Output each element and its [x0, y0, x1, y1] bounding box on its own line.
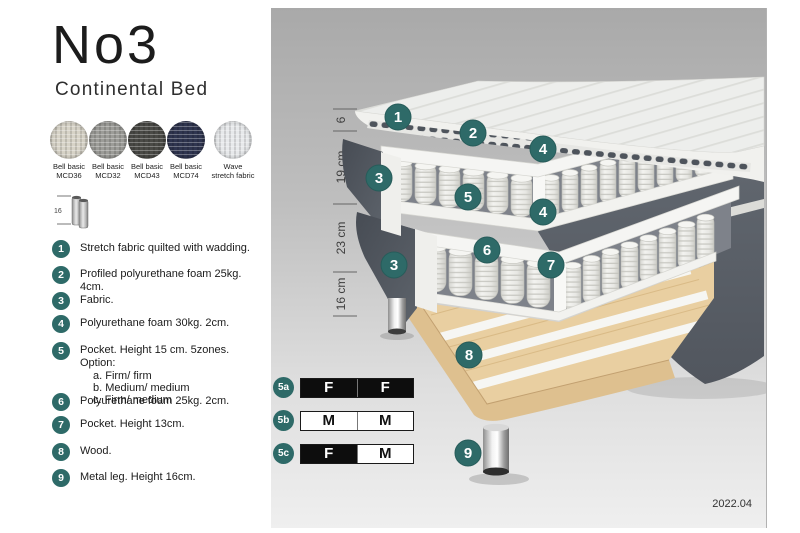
item-number-badge: 7 [52, 416, 70, 434]
spec-item-7: 7 Pocket. Height 13cm. [52, 416, 267, 434]
callout-9: 9 [455, 440, 481, 466]
callout-8: 8 [456, 342, 482, 368]
callout-6: 6 [474, 237, 500, 263]
spec-item-4: 4 Polyurethane foam 30kg. 2cm. [52, 315, 267, 333]
lower-cage-end-wall [415, 229, 437, 313]
callout-3a: 3 [366, 165, 392, 191]
item-number-badge: 5 [52, 342, 70, 360]
dimension-label: 16 cm [334, 278, 348, 311]
callout-3b: 3 [381, 252, 407, 278]
info-panel: No3 Continental Bed Bell basicMCD36 Bell… [0, 0, 271, 533]
version-label: 2022.04 [712, 498, 752, 510]
svg-text:3: 3 [390, 257, 398, 274]
front-metal-leg [483, 427, 509, 473]
svg-text:4: 4 [539, 141, 548, 158]
callout-4b: 4 [530, 199, 556, 225]
item-number-badge: 9 [52, 469, 70, 487]
left-metal-leg [388, 298, 406, 332]
spec-item-2: 2 Profiled polyurethane foam 25kg. 4cm. [52, 266, 267, 294]
spec-item-1: 1 Stretch fabric quilted with wadding. [52, 240, 267, 258]
svg-text:1: 1 [394, 109, 402, 126]
svg-text:2: 2 [469, 125, 477, 142]
spec-sheet-page: No3 Continental Bed Bell basicMCD36 Bell… [0, 0, 800, 533]
spec-item-6: 6 Polyurethane foam 25kg. 2cm. [52, 393, 267, 411]
item-number-badge: 2 [52, 266, 70, 284]
dimension-label: 6 [334, 116, 348, 123]
svg-text:4: 4 [539, 204, 548, 221]
item-number-badge: 8 [52, 443, 70, 461]
spec-list: 1 Stretch fabric quilted with wadding. 2… [0, 0, 271, 533]
upper-cage-end-wall [381, 152, 401, 236]
spec-item-9: 9 Metal leg. Height 16cm. [52, 469, 267, 487]
svg-text:9: 9 [464, 445, 472, 462]
bed-cutaway-illustration: 6 19 cm 23 cm 16 cm [271, 8, 766, 528]
dimension-label: 23 cm [334, 222, 348, 255]
callout-2: 2 [460, 120, 486, 146]
svg-text:8: 8 [465, 347, 473, 364]
svg-text:7: 7 [547, 257, 555, 274]
item-number-badge: 1 [52, 240, 70, 258]
callout-7: 7 [538, 252, 564, 278]
item-number-badge: 3 [52, 292, 70, 310]
svg-text:3: 3 [375, 170, 383, 187]
spec-item-8: 8 Wood. [52, 443, 267, 461]
spec-item-3: 3 Fabric. [52, 292, 267, 310]
callout-5: 5 [455, 184, 481, 210]
svg-text:5: 5 [464, 189, 472, 206]
callout-4a: 4 [530, 136, 556, 162]
callout-1: 1 [385, 104, 411, 130]
svg-text:6: 6 [483, 242, 491, 259]
item-number-badge: 6 [52, 393, 70, 411]
diagram-panel: 6 19 cm 23 cm 16 cm [271, 8, 767, 528]
item-number-badge: 4 [52, 315, 70, 333]
